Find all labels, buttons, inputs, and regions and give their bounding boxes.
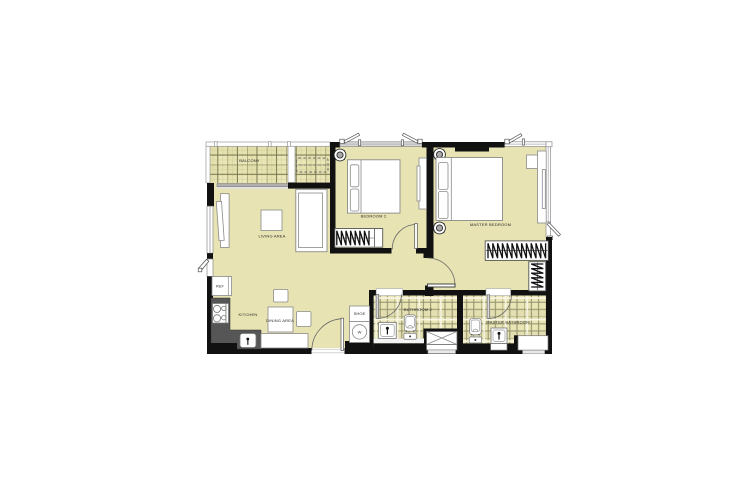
svg-text:MASTER BEDROOM: MASTER BEDROOM bbox=[470, 222, 511, 227]
svg-text:DINING AREA: DINING AREA bbox=[266, 318, 294, 323]
svg-text:LIVING AREA: LIVING AREA bbox=[258, 234, 285, 239]
svg-text:BATHROOM 2: BATHROOM 2 bbox=[404, 307, 433, 312]
svg-text:KITCHEN: KITCHEN bbox=[239, 312, 258, 317]
svg-text:W: W bbox=[358, 330, 362, 335]
svg-text:BALCONY: BALCONY bbox=[239, 158, 260, 163]
svg-text:REF: REF bbox=[216, 285, 224, 289]
svg-text:MASTER BATHROOM: MASTER BATHROOM bbox=[486, 320, 530, 325]
svg-text:SHOE: SHOE bbox=[354, 311, 366, 316]
svg-text:BEDROOM 2: BEDROOM 2 bbox=[361, 214, 387, 219]
